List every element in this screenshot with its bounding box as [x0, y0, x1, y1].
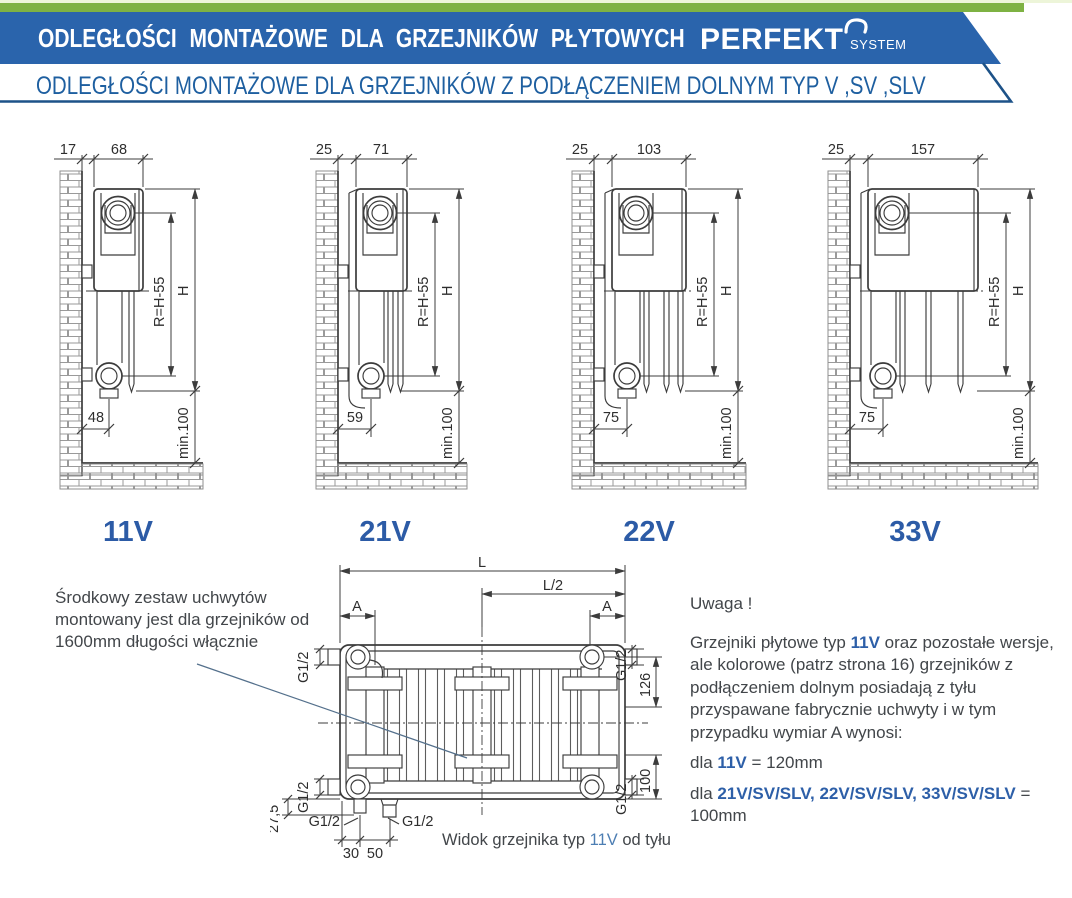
- header-title-2-text: ODLEGŁOŚCI MONTAŻOWE DLA GRZEJNIKÓW Z PO…: [36, 72, 926, 99]
- diagram-22v: 25 103 R=H-55 H min.100 75 22V: [536, 141, 788, 551]
- dim-wall-gap: 25: [572, 142, 588, 158]
- diagrams-row: 17 68 R=H-55 H min.100 48 11V: [24, 141, 1072, 551]
- header-banner: ODLEGŁOŚCI MONTAŻOWE DLA GRZEJNIKÓW PŁYT…: [0, 0, 1072, 108]
- dim-h: H: [1011, 286, 1027, 296]
- dim-depth: 103: [637, 142, 661, 158]
- dim-30: 30: [343, 846, 359, 862]
- dim-h: H: [719, 286, 735, 296]
- dim-r: R=H-55: [416, 277, 432, 327]
- rule-other-b: 21V/SV/SLV, 22V/SV/SLV, 33V/SV/SLV: [717, 784, 1015, 803]
- rear-bottom-dimensions: 30 50 G1/2 G1/2: [309, 801, 434, 862]
- header-title-2: ODLEGŁOŚCI MONTAŻOWE DLA GRZEJNIKÓW Z PO…: [36, 72, 926, 99]
- type-label-21v: 21V: [359, 516, 411, 548]
- radiator-21v: [338, 189, 413, 408]
- rear-top-dimensions: L L/2 A A: [340, 557, 625, 665]
- dim-g12-bottom-left: G1/2: [309, 814, 340, 830]
- dim-bottom: 75: [859, 410, 875, 426]
- bottom-section: Środkowy zestaw uchwytów montowany jest …: [0, 551, 1072, 898]
- dim-g12-mid-left: G1/2: [296, 782, 312, 813]
- header-title-1-text: ODLEGŁOŚCI MONTAŻOWE DLA GRZEJNIKÓW PŁYT…: [38, 23, 685, 53]
- bottom-stub-1: [354, 799, 366, 813]
- warning-paragraph: Grzejniki płytowe typ 11V oraz pozostałe…: [690, 632, 1066, 745]
- rule-11v-b: 11V: [717, 753, 746, 772]
- radiator-11v: [82, 189, 149, 398]
- dim-depth: 71: [373, 142, 389, 158]
- dim-h: H: [176, 286, 192, 296]
- dim-r: R=H-55: [152, 277, 168, 327]
- rule-11v-c: = 120mm: [747, 753, 823, 772]
- rule-other: dla 21V/SV/SLV, 22V/SV/SLV, 33V/SV/SLV =…: [690, 783, 1066, 828]
- dim-g12-top-left: G1/2: [296, 652, 312, 683]
- dim-h: H: [440, 286, 456, 296]
- dim-L: L: [478, 557, 486, 571]
- diagram-21v: 25 71 R=H-55 H min.100 59 21V: [280, 141, 532, 551]
- diagram-11v: 17 68 R=H-55 H min.100 48 11V: [24, 141, 276, 551]
- logo-brand: PERFEKT: [700, 23, 844, 56]
- dim-27-5: 27,5: [270, 805, 282, 833]
- dim-wall-gap: 25: [316, 142, 332, 158]
- warning-p1b: 11V: [851, 633, 880, 652]
- header-green-strip: [0, 3, 1024, 12]
- dim-g12-top-right: G1/2: [614, 650, 630, 681]
- diagram-33v: 25 157 R=H-55 H min.100 75 33V: [792, 141, 1044, 551]
- logo-sub: SYSTEM: [850, 37, 906, 52]
- type-label-11v: 11V: [103, 516, 154, 548]
- dim-bottom: 75: [603, 410, 619, 426]
- note-right: Uwaga ! Grzejniki płytowe typ 11V oraz p…: [690, 593, 1066, 834]
- dim-50: 50: [367, 846, 383, 862]
- rear-view-caption: Widok grzejnika typ 11V od tyłu: [442, 831, 671, 850]
- radiator-22v: [594, 189, 692, 408]
- warning-title: Uwaga !: [690, 593, 1066, 616]
- dim-bottom: 59: [347, 410, 363, 426]
- type-label-22v: 22V: [623, 516, 675, 548]
- dim-bottom: 48: [88, 410, 104, 426]
- dim-wall-gap: 17: [60, 142, 76, 158]
- dimensions-33v: 25 157 R=H-55 H min.100 75: [822, 142, 1035, 468]
- header-light-strip: [0, 0, 1072, 3]
- page: ODLEGŁOŚCI MONTAŻOWE DLA GRZEJNIKÓW PŁYT…: [0, 0, 1072, 898]
- dim-wall-gap: 25: [828, 142, 844, 158]
- dim-min: min.100: [176, 407, 192, 459]
- header-title-1: ODLEGŁOŚCI MONTAŻOWE DLA GRZEJNIKÓW PŁYT…: [38, 23, 685, 53]
- caption-type: 11V: [590, 831, 618, 849]
- rule-11v: dla 11V = 120mm: [690, 752, 1066, 775]
- dim-depth: 157: [911, 142, 935, 158]
- dim-r: R=H-55: [695, 277, 711, 327]
- dim-126: 126: [638, 673, 654, 697]
- bottom-stub-2: [381, 799, 398, 817]
- rear-radiator-body: [318, 627, 648, 817]
- dim-depth: 68: [111, 142, 127, 158]
- rear-left-dimensions: G1/2 G1/2 27,5: [270, 645, 354, 833]
- caption-text-1: Widok grzejnika typ: [442, 831, 590, 849]
- dim-A-left: A: [352, 599, 362, 615]
- dim-min: min.100: [1011, 407, 1027, 459]
- dim-min: min.100: [719, 407, 735, 459]
- warning-p1a: Grzejniki płytowe typ: [690, 633, 851, 652]
- dim-100: 100: [638, 769, 654, 793]
- rule-other-a: dla: [690, 784, 717, 803]
- dim-L2: L/2: [543, 578, 563, 594]
- dim-r: R=H-55: [987, 277, 1003, 327]
- dim-A-right: A: [602, 599, 612, 615]
- dim-g12-bottom-right: G1/2: [402, 814, 433, 830]
- rule-11v-a: dla: [690, 753, 717, 772]
- type-label-33v: 33V: [889, 516, 941, 548]
- radiator-33v: [850, 189, 984, 408]
- dim-min: min.100: [440, 407, 456, 459]
- caption-text-2: od tyłu: [618, 831, 671, 849]
